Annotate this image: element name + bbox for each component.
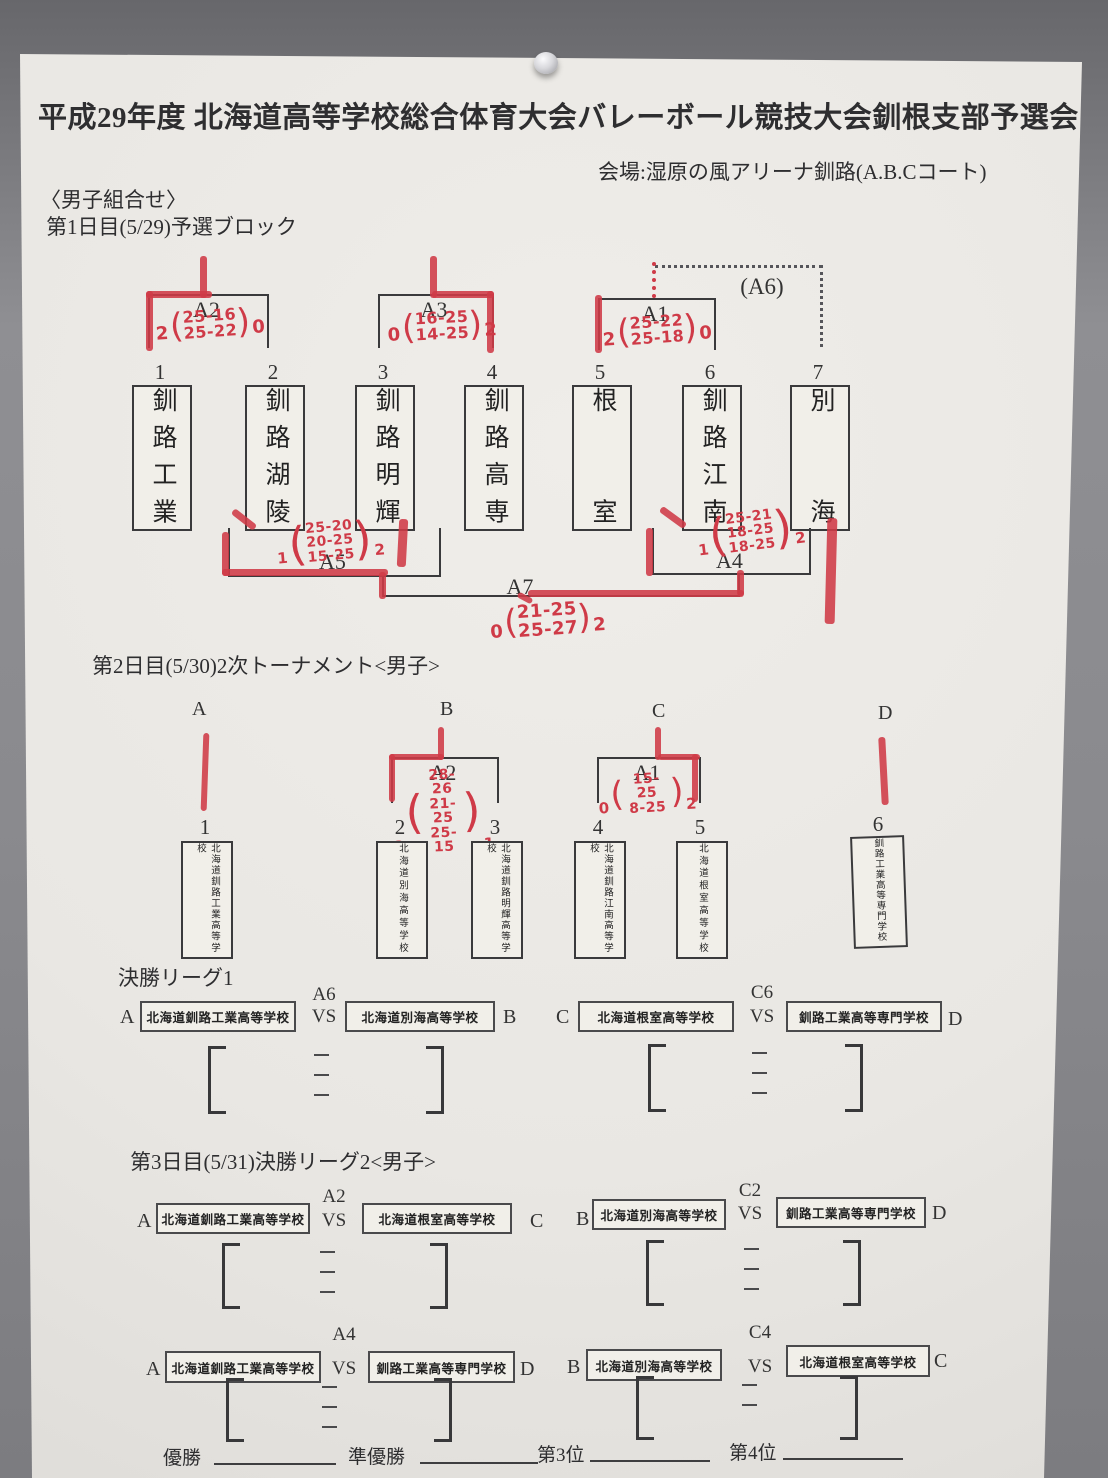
league-letter: D — [932, 1202, 946, 1225]
pushpin-icon — [534, 52, 558, 74]
score-bracket-right — [845, 1044, 863, 1112]
match-code: A4 — [322, 1324, 366, 1346]
score-dash — [744, 1248, 759, 1250]
team-name-box: 北海道別海高等学校 — [586, 1349, 722, 1381]
league-letter: B — [567, 1356, 580, 1379]
red-marker-stroke — [878, 737, 889, 805]
score-bracket-left — [646, 1240, 664, 1306]
photo-of-bracket-sheet: 平成29年度 北海道高等学校総合体育大会バレーボール競技大会釧根支部予選会 会場… — [0, 0, 1108, 1478]
team-name-box: 北海道別海高等学校 — [345, 1001, 495, 1032]
vs-label: VS — [312, 1210, 356, 1232]
red-marker-stroke — [646, 528, 653, 576]
league-letter: A — [146, 1358, 160, 1381]
match-score-a7: 0( 21-2525-27 )2 — [464, 596, 631, 644]
team-box: 釧路工業高等専門学校 — [850, 835, 908, 949]
footer-label-fourth: 第4位 — [729, 1438, 777, 1465]
score-dash — [744, 1288, 759, 1290]
team-box: 釧路高専 — [464, 385, 524, 531]
footer-label-third: 第3位 — [537, 1440, 585, 1467]
score-dash — [314, 1094, 329, 1096]
team-name-box: 釧路工業高等専門学校 — [786, 1001, 942, 1032]
league-letter: C — [934, 1350, 947, 1373]
team-number: 5 — [572, 360, 628, 385]
score-bracket-left — [208, 1046, 226, 1114]
team-box: 根室 — [572, 385, 632, 531]
footer-underline — [590, 1440, 710, 1462]
match-score-day2-a1: 0( 15-258-25 )2 — [595, 769, 699, 817]
footer-label-runnerup: 準優勝 — [348, 1442, 405, 1469]
team-box: 釧路湖陵 — [245, 385, 305, 531]
score-dash — [752, 1072, 767, 1074]
score-dash — [752, 1052, 767, 1054]
footer-underline — [214, 1443, 336, 1465]
league-letter: C — [530, 1210, 543, 1233]
match-code: C6 — [740, 982, 784, 1004]
venue-label: 会場:湿原の風アリーナ釧路(A.B.Cコート) — [598, 156, 987, 186]
team-name-box: 北海道根室高等学校 — [786, 1345, 930, 1377]
league-letter: B — [576, 1208, 589, 1231]
red-marker-stroke — [737, 570, 744, 596]
score-bracket-right — [434, 1378, 452, 1442]
score-bracket-right — [430, 1243, 448, 1309]
team-number: 3 — [467, 815, 523, 840]
score-dash — [744, 1268, 759, 1270]
group-letter-a: A — [192, 698, 206, 721]
team-number: 7 — [790, 360, 846, 385]
league-letter: D — [520, 1358, 534, 1381]
vs-label: VS — [738, 1356, 782, 1378]
score-bracket-left — [226, 1378, 244, 1442]
sheet-content: 平成29年度 北海道高等学校総合体育大会バレーボール競技大会釧根支部予選会 会場… — [0, 0, 1108, 1478]
group-letter-c: C — [652, 700, 665, 723]
team-number: 4 — [570, 815, 626, 840]
red-marker-stroke — [432, 291, 494, 298]
team-box: 北海道釧路江南高等学校 — [574, 841, 626, 959]
match-code: A2 — [312, 1186, 356, 1208]
team-name-box: 北海道釧路工業高等学校 — [156, 1203, 310, 1234]
match-code: C4 — [738, 1322, 782, 1344]
score-bracket-right — [843, 1240, 861, 1306]
footer-label-champion: 優勝 — [163, 1443, 201, 1470]
league-letter: C — [556, 1006, 569, 1029]
team-number: 6 — [850, 812, 906, 837]
score-dash — [320, 1291, 335, 1293]
team-box: 北海道根室高等学校 — [676, 841, 728, 959]
score-dash — [320, 1251, 335, 1253]
team-name-box: 北海道根室高等学校 — [362, 1203, 512, 1234]
score-dash — [314, 1074, 329, 1076]
team-name-box: 北海道根室高等学校 — [578, 1001, 734, 1032]
league-letter: A — [120, 1006, 134, 1029]
team-name-box: 北海道別海高等学校 — [592, 1199, 726, 1230]
team-box: 釧路工業 — [132, 385, 192, 531]
red-marker-stroke — [201, 733, 210, 811]
team-number: 6 — [682, 360, 738, 385]
day2-heading: 第2日目(5/30)2次トーナメント<男子> — [92, 650, 440, 680]
team-box: 釧路明輝 — [355, 385, 415, 531]
score-dash — [320, 1271, 335, 1273]
match-score-a3: 0( 16-2514-25 )2 — [382, 307, 502, 346]
red-marker-stroke — [825, 518, 838, 624]
team-name-box: 北海道釧路工業高等学校 — [140, 1001, 296, 1032]
team-number: 2 — [372, 815, 428, 840]
vs-label: VS — [740, 1006, 784, 1028]
red-marker-stroke — [379, 572, 386, 599]
match-code: A6 — [302, 984, 346, 1006]
score-bracket-left — [222, 1243, 240, 1309]
vs-label: VS — [322, 1358, 366, 1380]
red-marker-stroke — [528, 590, 744, 597]
day3-heading: 第3日目(5/31)決勝リーグ2<男子> — [130, 1146, 436, 1176]
group-letter-b: B — [440, 698, 453, 721]
score-bracket-left — [648, 1044, 666, 1112]
team-number: 1 — [177, 815, 233, 840]
group-label: 〈男子組合せ〉 — [40, 184, 187, 214]
vs-label: VS — [728, 1203, 772, 1225]
score-dash — [314, 1054, 329, 1056]
team-number: 2 — [245, 360, 301, 385]
footer-underline — [783, 1438, 903, 1460]
score-bracket-right — [840, 1376, 858, 1440]
match-code: C2 — [728, 1180, 772, 1202]
dotted-connector-a6-h — [655, 265, 822, 268]
team-box: 北海道釧路工業高等学校 — [181, 841, 233, 959]
team-number: 1 — [132, 360, 188, 385]
score-bracket-right — [426, 1046, 444, 1114]
team-number: 5 — [672, 815, 728, 840]
team-box: 北海道釧路明輝高等学校 — [471, 841, 523, 959]
score-dash — [322, 1386, 337, 1388]
page-title: 平成29年度 北海道高等学校総合体育大会バレーボール競技大会釧根支部予選会 — [38, 94, 1079, 136]
dotted-connector-a6-v — [820, 265, 823, 347]
league-letter: D — [948, 1008, 962, 1031]
team-number: 3 — [355, 360, 411, 385]
team-number: 4 — [464, 360, 520, 385]
vs-label: VS — [302, 1006, 346, 1028]
group-letter-d: D — [878, 702, 892, 725]
score-dash — [742, 1384, 757, 1386]
day1-heading: 第1日目(5/29)予選ブロック — [46, 211, 297, 241]
match-label-a6: (A6) — [712, 274, 812, 300]
score-dash — [322, 1406, 337, 1408]
league-letter: A — [137, 1210, 151, 1233]
score-dash — [752, 1092, 767, 1094]
red-marker-stroke — [389, 754, 444, 760]
footer-underline — [420, 1442, 538, 1464]
red-marker-stroke — [146, 291, 212, 298]
league-letter: B — [503, 1006, 516, 1029]
team-name-box: 釧路工業高等専門学校 — [776, 1197, 926, 1228]
score-dash — [322, 1426, 337, 1428]
team-box: 北海道別海高等学校 — [376, 841, 428, 959]
score-bracket-left — [636, 1376, 654, 1440]
league1-heading: 決勝リーグ1 — [118, 962, 234, 992]
score-dash — [742, 1404, 757, 1406]
red-dotted-stroke-a1 — [652, 262, 656, 298]
